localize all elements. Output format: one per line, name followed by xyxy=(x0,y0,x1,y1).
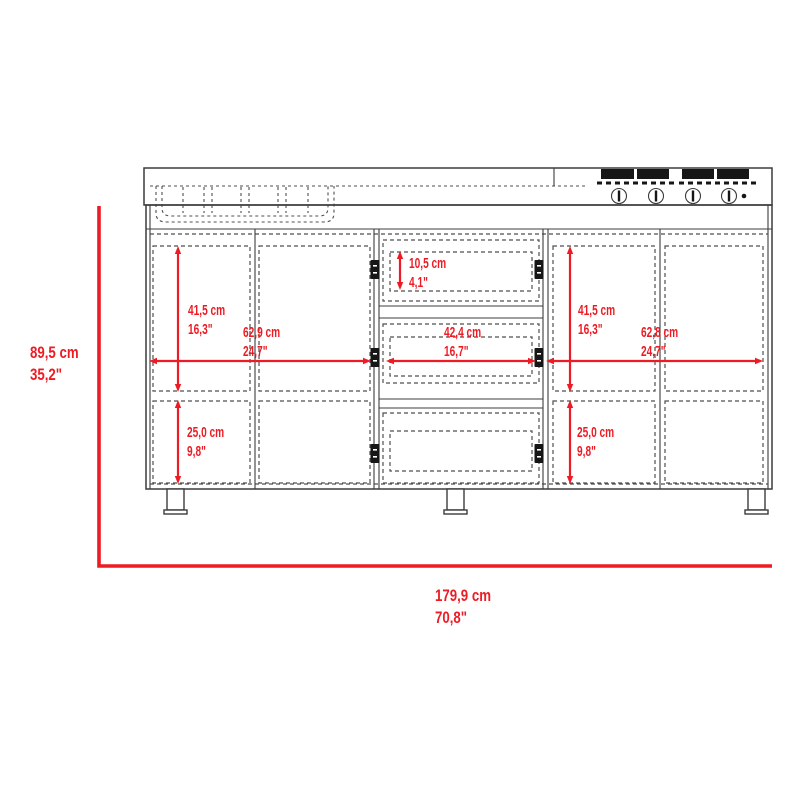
left-door-height-in-label: 16,3" xyxy=(188,321,213,337)
right-section-width-in-label: 24,7" xyxy=(641,343,666,359)
drawer-3-opening xyxy=(383,413,539,483)
door-upper-right-2 xyxy=(665,246,763,391)
leg-middle xyxy=(447,489,464,510)
top-drawer-height-in-label: 4,1" xyxy=(409,274,428,290)
drawer-1-opening xyxy=(383,240,539,301)
left-section-width-cm-label: 62,9 cm xyxy=(243,324,280,340)
overall-height-in-label: 35,2" xyxy=(30,366,62,385)
right-lower-height-cm-label: 25,0 cm xyxy=(577,424,614,440)
cabinet-doors xyxy=(153,246,763,483)
leg-right xyxy=(748,489,765,510)
door-lower-left-2 xyxy=(259,401,370,483)
right-door-height-cm-label: 41,5 cm xyxy=(578,302,615,318)
countertop xyxy=(144,168,772,205)
drawer-slide-icon xyxy=(371,348,380,367)
drawer-3-front xyxy=(390,431,532,471)
overall-height-cm-label: 89,5 cm xyxy=(30,344,79,363)
overall-width-in-label: 70,8" xyxy=(435,609,467,628)
drawer-slide-icon xyxy=(535,260,544,279)
door-upper-left-2 xyxy=(259,246,370,391)
cooktop xyxy=(597,169,756,204)
right-section-width-cm-label: 62,8 cm xyxy=(641,324,678,340)
right-door-height-in-label: 16,3" xyxy=(578,321,603,337)
leg-middle-base xyxy=(444,510,467,514)
door-lower-right-2 xyxy=(665,401,763,483)
leg-left xyxy=(167,489,184,510)
drawer-slide-icon xyxy=(371,260,380,279)
burner-grate-icon xyxy=(637,169,669,179)
drawer-slide-icon xyxy=(535,444,544,463)
door-lower-right-1 xyxy=(553,401,655,483)
leg-left-base xyxy=(164,510,187,514)
sink-divider-lines xyxy=(183,187,308,213)
burner-grate-icon xyxy=(601,169,634,179)
sink-outline xyxy=(156,186,334,222)
burner-grate-icon xyxy=(682,169,714,179)
drawer-width-in-label: 16,7" xyxy=(444,343,469,359)
drawer-slide-icon xyxy=(371,444,380,463)
overall-width-cm-label: 179,9 cm xyxy=(435,587,491,606)
drawer-width-cm-label: 42,4 cm xyxy=(444,324,481,340)
internal-dimension-arrows xyxy=(149,246,763,484)
drawer-slide-icon xyxy=(535,348,544,367)
leg-right-base xyxy=(745,510,768,514)
door-upper-left-1 xyxy=(153,246,250,391)
internal-dimension-labels: 41,5 cm 16,3" 62,9 cm 24,7" 10,5 cm 4,1"… xyxy=(187,255,678,459)
left-door-height-cm-label: 41,5 cm xyxy=(188,302,225,318)
sink-inner-bowl xyxy=(162,186,328,216)
door-upper-right-1 xyxy=(553,246,655,391)
control-knobs xyxy=(612,189,747,204)
top-drawer-height-cm-label: 10,5 cm xyxy=(409,255,446,271)
left-section-width-in-label: 24,7" xyxy=(243,343,268,359)
cabinet-legs xyxy=(164,489,768,514)
sink-outer-bowl xyxy=(156,186,334,222)
igniter-dot-icon xyxy=(742,194,747,199)
product-dimension-diagram: 89,5 cm 35,2" 179,9 cm 70,8" xyxy=(0,0,800,800)
left-lower-height-in-label: 9,8" xyxy=(187,443,206,459)
right-lower-height-in-label: 9,8" xyxy=(577,443,596,459)
kitchen-cabinet-drawing: 89,5 cm 35,2" 179,9 cm 70,8" xyxy=(0,0,800,800)
door-lower-left-1 xyxy=(153,401,250,483)
burner-grate-icon xyxy=(717,169,749,179)
left-lower-height-cm-label: 25,0 cm xyxy=(187,424,224,440)
